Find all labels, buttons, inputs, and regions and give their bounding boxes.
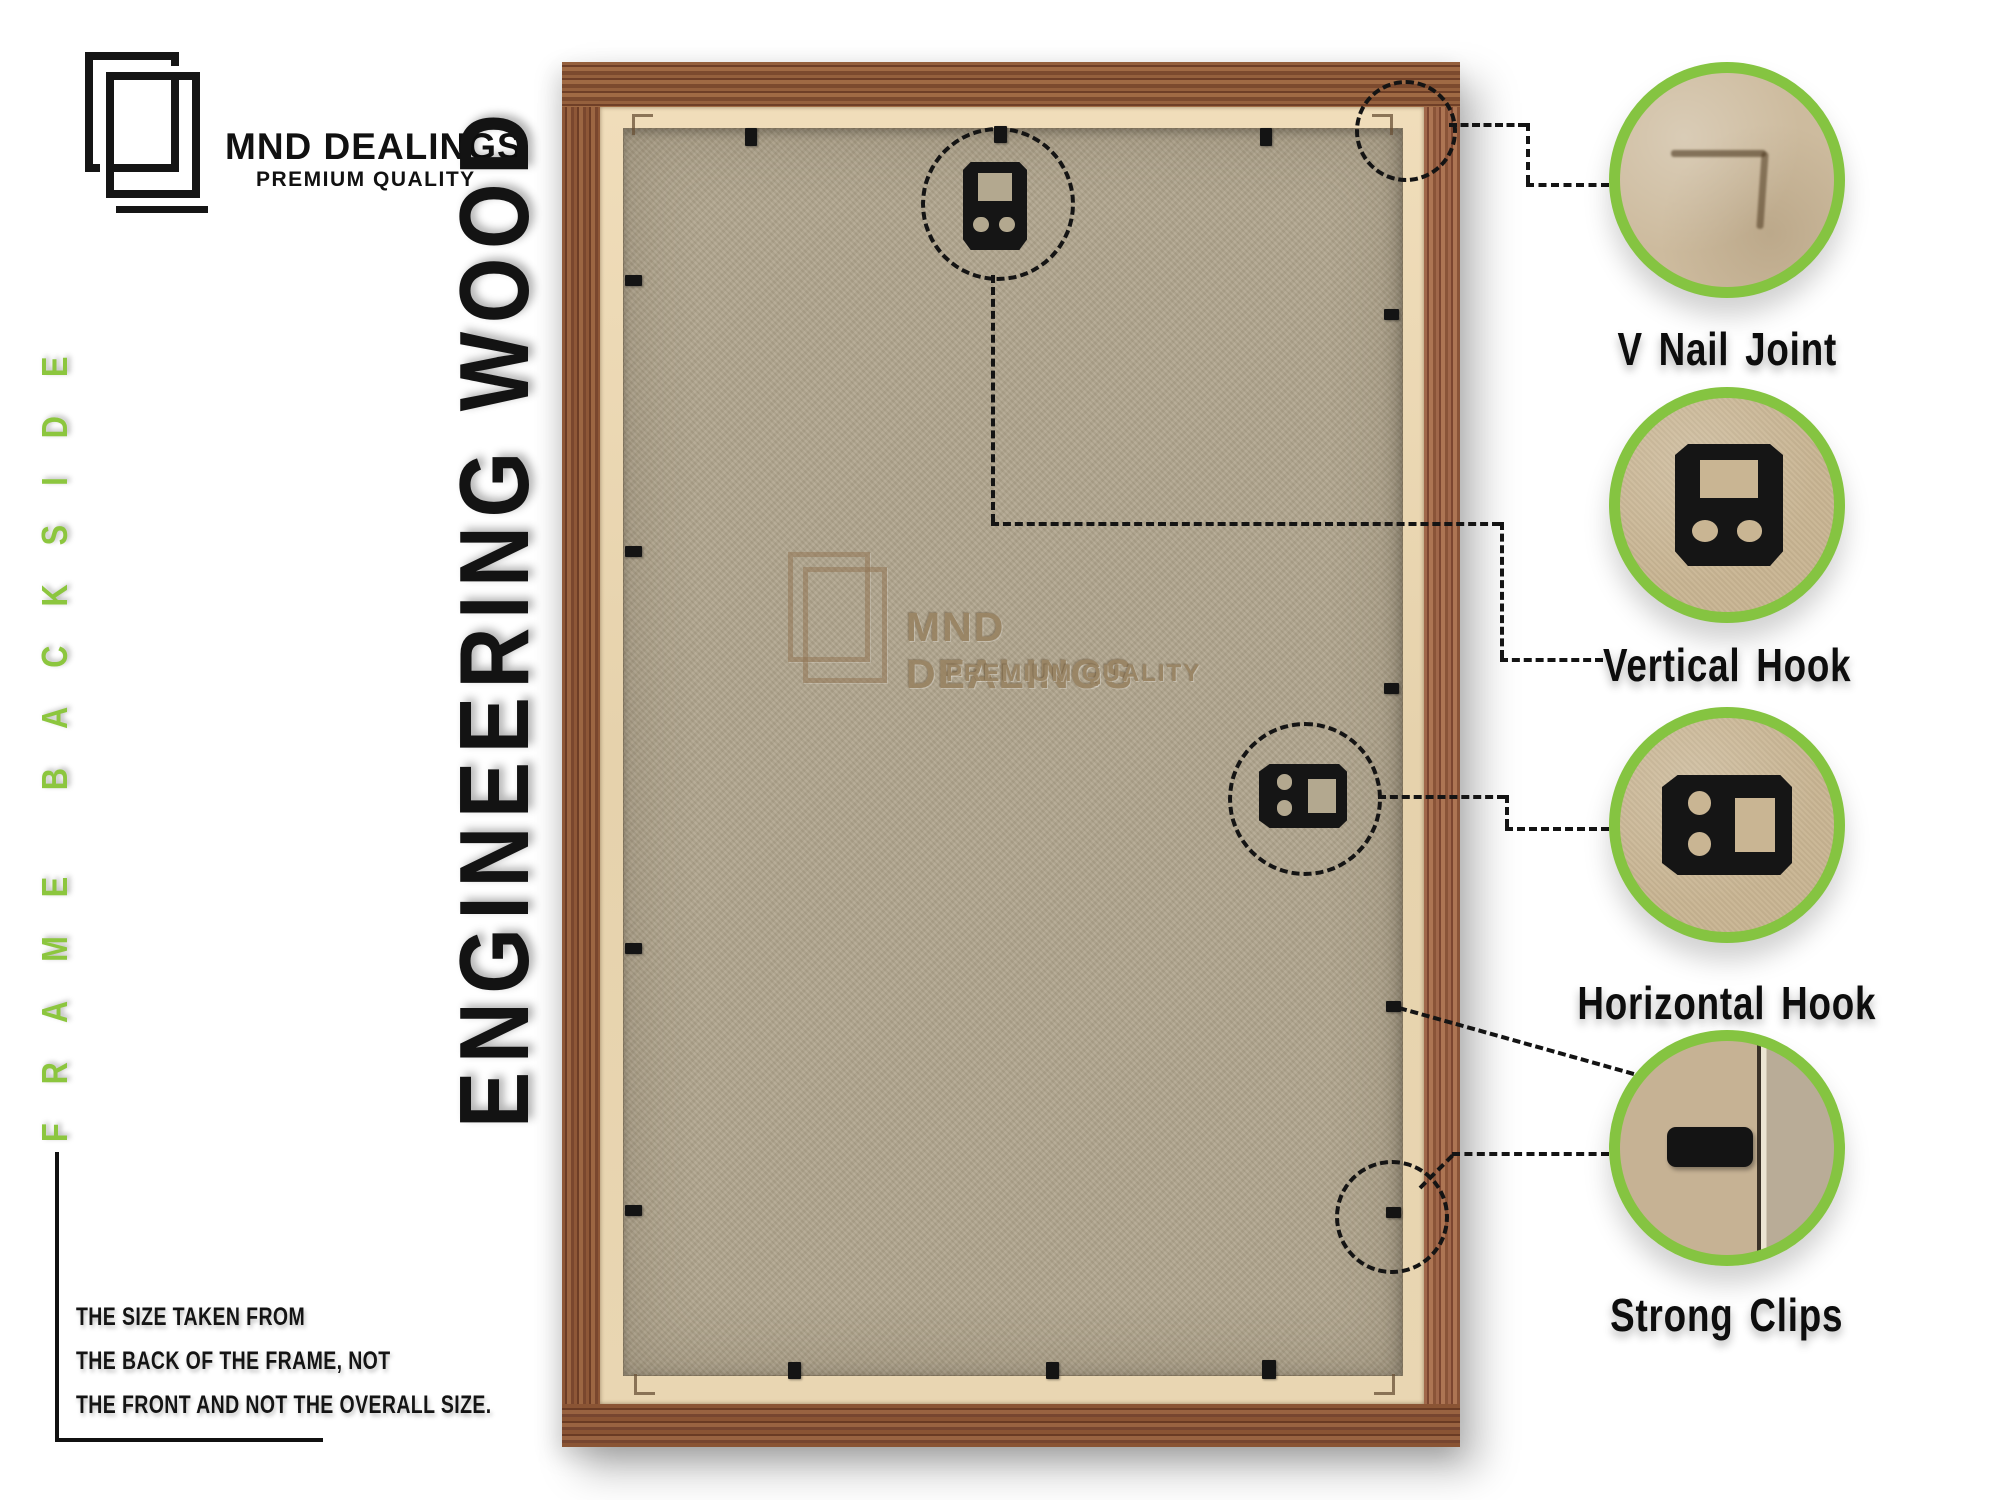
metal-clip: [1667, 1127, 1753, 1168]
callout-label-v-nail-joint: V Nail Joint: [1537, 322, 1917, 376]
size-note-text: THE BACK OF THE FRAME, NOT: [76, 1347, 391, 1376]
leader-horizontal-hook: [1378, 795, 1505, 799]
callout-label-text: Strong Clips: [1610, 1288, 1843, 1342]
leader-v-nail: [1526, 183, 1609, 187]
leader-vertical-hook: [991, 522, 1500, 526]
dashed-circle-horizontal-hook: [1228, 722, 1382, 876]
vertical-hook-hardware: [1675, 444, 1783, 566]
metal-clip: [745, 128, 757, 146]
frame-wood-left: [562, 107, 600, 1404]
hook-window: [1735, 798, 1775, 852]
size-note-text: THE SIZE TAKEN FROM: [76, 1303, 305, 1332]
leader-vertical-hook: [1500, 522, 1504, 658]
size-note-line: THE SIZE TAKEN FROM: [76, 1303, 370, 1332]
metal-clip: [1384, 683, 1399, 694]
leader-v-nail: [1526, 123, 1530, 183]
size-note-line: THE BACK OF THE FRAME, NOT: [76, 1347, 479, 1376]
size-note-line: THE FRONT AND NOT THE OVERALL SIZE.: [76, 1391, 609, 1420]
hook-screw-hole: [1737, 520, 1763, 542]
corner-joint-mark: [1374, 1374, 1395, 1395]
leader-horizontal-hook: [1505, 827, 1609, 831]
metal-clip: [625, 943, 642, 954]
callout-label-horizontal-hook: Horizontal Hook: [1537, 976, 1917, 1030]
callout-label-text: Horizontal Hook: [1578, 976, 1877, 1030]
leader-vertical-hook: [991, 275, 995, 522]
frame-backside-infographic: MND DEALINGS PREMIUM QUALITY FRAME BACKS…: [0, 0, 2000, 1500]
callout-label-text: Vertical Hook: [1603, 638, 1851, 692]
v-nail-groove: [1671, 150, 1765, 157]
leader-v-nail: [1449, 123, 1526, 127]
metal-clip: [1260, 128, 1272, 146]
strong-clip-photo: [1609, 1030, 1845, 1266]
note-bracket: [55, 1438, 323, 1442]
metal-clip: [1262, 1360, 1276, 1379]
v-nail-groove: [1756, 152, 1769, 229]
watermark: MND DEALINGS PREMIUM QUALITY: [788, 552, 1228, 772]
callout-label-strong-clips: Strong Clips: [1537, 1288, 1917, 1342]
dashed-circle-vertical-hook: [921, 127, 1075, 281]
metal-clip: [1384, 309, 1399, 320]
note-bracket: [55, 1152, 59, 1442]
metal-clip: [625, 546, 642, 557]
material-vertical-label: ENGINEERING WOOD: [438, 212, 538, 1128]
callout-label-text: V Nail Joint: [1617, 322, 1837, 376]
leader-horizontal-hook: [1505, 795, 1509, 827]
frames-icon: [106, 72, 200, 198]
side-vertical-label: FRAME BACKSIDE: [34, 326, 92, 1142]
corner-joint-mark: [634, 1374, 655, 1395]
v-nail-joint-photo: [1609, 62, 1845, 298]
frame-wood-bottom: [562, 1404, 1460, 1447]
frames-icon: [116, 206, 208, 213]
leader-strong-clip: [1452, 1152, 1609, 1156]
hook-window: [1700, 460, 1758, 498]
size-note-text: THE FRONT AND NOT THE OVERALL SIZE.: [76, 1391, 492, 1420]
horizontal-hook-photo: [1609, 707, 1845, 943]
vertical-hook-photo: [1609, 387, 1845, 623]
metal-clip: [1046, 1362, 1059, 1379]
dashed-circle-v-nail: [1355, 80, 1457, 182]
metal-clip: [788, 1362, 801, 1379]
corner-shadow: [1637, 244, 1688, 291]
metal-clip: [625, 1205, 642, 1216]
watermark-tagline: PREMIUM QUALITY: [946, 660, 1201, 688]
horizontal-hook-hardware: [1662, 775, 1792, 875]
metal-clip: [625, 275, 642, 286]
frame-wood-top: [562, 62, 1460, 107]
watermark-frames-icon: [803, 567, 887, 683]
hook-screw-hole: [1692, 520, 1718, 542]
callout-label-vertical-hook: Vertical Hook: [1537, 638, 1917, 692]
corner-joint-mark: [632, 114, 653, 135]
